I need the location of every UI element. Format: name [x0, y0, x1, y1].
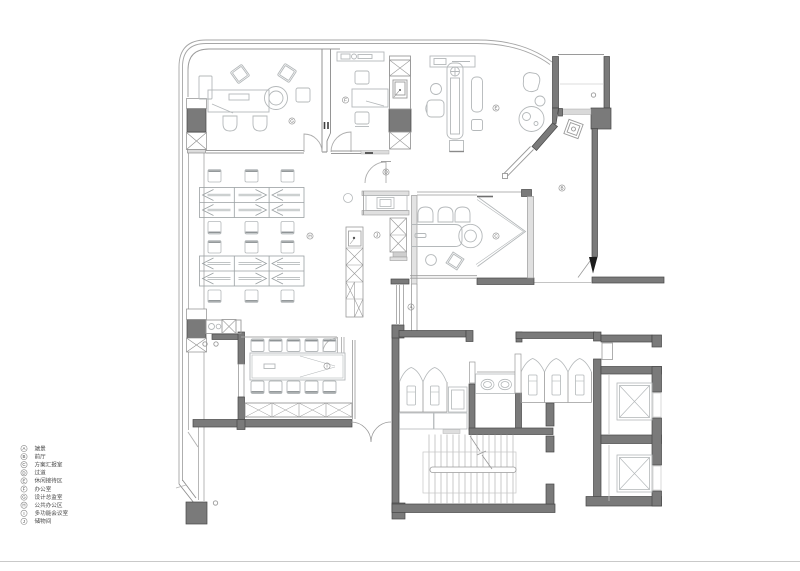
svg-text:B: B	[23, 454, 26, 459]
svg-text:休闲接待区: 休闲接待区	[35, 477, 63, 485]
svg-text:B: B	[560, 186, 563, 191]
svg-text:多功能会议室: 多功能会议室	[35, 509, 69, 517]
svg-text:H: H	[308, 234, 311, 239]
svg-text:J: J	[23, 519, 25, 524]
svg-text:前厅: 前厅	[35, 452, 47, 460]
svg-text:G: G	[290, 119, 294, 124]
svg-text:端景: 端景	[35, 444, 47, 452]
svg-text:I: I	[326, 364, 327, 369]
svg-text:设计总监室: 设计总监室	[35, 493, 63, 501]
svg-text:I: I	[23, 511, 24, 516]
svg-text:办公室: 办公室	[35, 485, 52, 493]
svg-text:方案汇报室: 方案汇报室	[35, 461, 63, 469]
svg-text:E: E	[494, 106, 497, 111]
svg-text:A: A	[23, 446, 26, 451]
svg-text:过道: 过道	[35, 469, 47, 477]
svg-text:H: H	[22, 503, 25, 508]
svg-text:G: G	[22, 495, 26, 500]
svg-text:F: F	[344, 98, 347, 103]
svg-text:J: J	[376, 233, 378, 238]
svg-text:E: E	[23, 478, 26, 483]
svg-text:C: C	[22, 462, 25, 467]
svg-text:公共办公区: 公共办公区	[35, 501, 63, 509]
svg-text:D: D	[22, 470, 25, 475]
svg-text:储物间: 储物间	[35, 517, 52, 525]
svg-text:F: F	[23, 487, 26, 492]
